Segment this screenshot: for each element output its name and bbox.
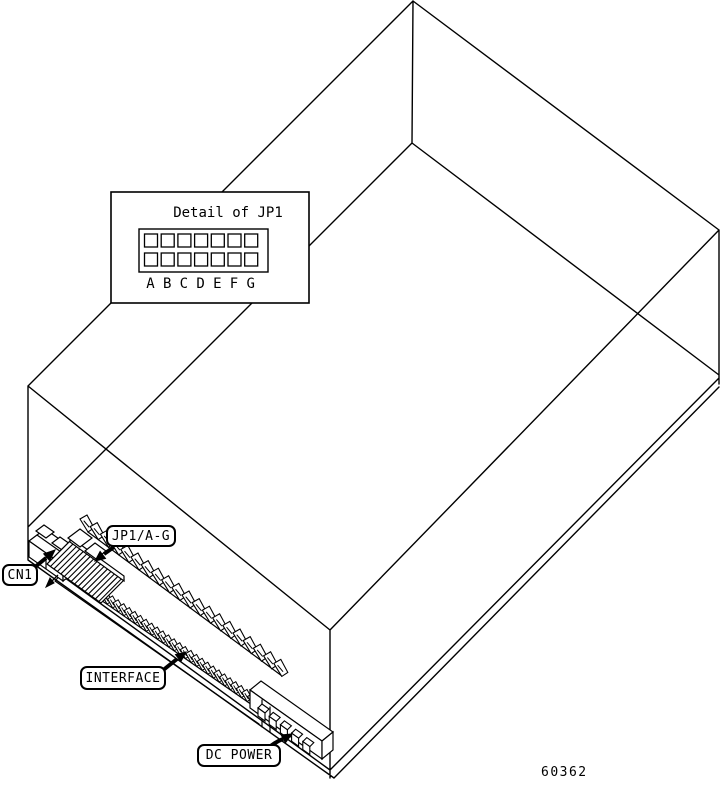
callout-interface-label: INTERFACE [86,671,161,686]
callout-cn1: CN1 [2,564,38,586]
detail-panel: Detail of JP1 A B C D E F G [111,192,309,303]
jp1-pin-label-a: A [146,276,155,292]
detail-panel-title: Detail of JP1 [173,205,283,221]
callout-jp1-label: JP1/A-G [112,529,170,544]
jp1-pin-label-e: E [213,276,221,292]
figure-canvas: Detail of JP1 A B C D E F G [0,0,721,789]
callout-dc-power-label: DC POWER [206,748,273,763]
enclosure-edges [28,1,719,778]
interface-contact-teeth [102,592,263,709]
callout-dc-power: DC POWER [197,744,281,767]
rear-connectors [29,515,333,759]
interface-arrow [162,652,186,671]
jp1-pin-label-b: B [163,276,171,292]
jp1-pin-label-d: D [196,276,204,292]
jp1-pin-label-f: F [230,276,238,292]
callout-cn1-label: CN1 [8,568,33,583]
jp1-pin-label-c: C [180,276,188,292]
figure-number: 60362 [541,765,588,780]
jp1-pin-label-g: G [246,276,254,292]
callout-jp1: JP1/A-G [106,525,176,547]
callout-interface: INTERFACE [80,666,166,690]
enclosure-wireframe [28,1,719,778]
